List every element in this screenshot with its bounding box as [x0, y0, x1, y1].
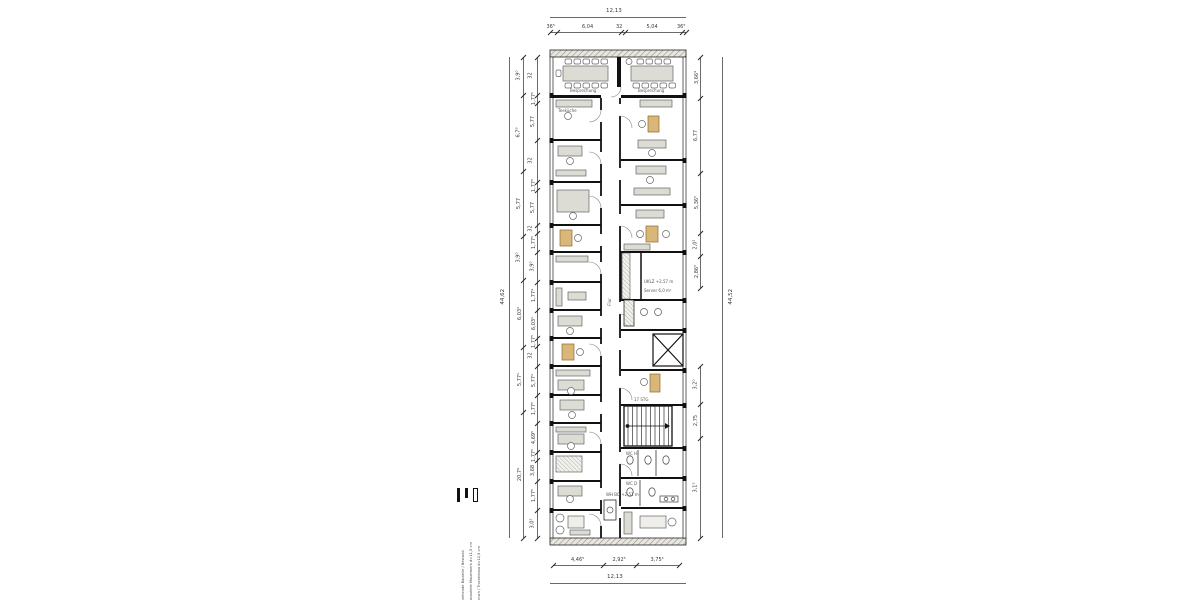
dim-label: 32	[529, 157, 534, 163]
dim-label: 5,77	[517, 197, 522, 208]
dim-label: 6,03¹	[532, 317, 537, 330]
room-label-note-center: WH BO +2,51 m	[606, 493, 639, 497]
dim-label: 5,04	[647, 25, 658, 30]
dim-label: 2,0²	[693, 239, 698, 249]
dim-total-top-line	[550, 17, 686, 18]
floor-plan-sheet: 12,13 12,13 44,62 44,52 36⁵6,04325,0436⁵…	[0, 0, 1200, 600]
meeting-room-right-furniture	[626, 59, 676, 89]
dim-label: 32	[529, 72, 534, 78]
legend-label: Bestehende Bauteile / Bestand	[461, 550, 465, 600]
dim-total-top: 12,13	[606, 9, 622, 15]
dim-label: 6,7⁹	[516, 128, 521, 138]
legend-line-sample	[465, 488, 468, 498]
dim-label: 3,9⁰	[516, 71, 521, 81]
legend-label: Neubauteile Mauerwerk d=11,5 cm	[469, 542, 473, 600]
dim-chain-line	[550, 32, 686, 33]
left-offices-furniture	[556, 100, 592, 535]
dim-label: 1,77⁵	[532, 449, 537, 462]
dim-label: 1,77⁵	[532, 488, 537, 501]
dim-label: 20,7⁹	[518, 468, 523, 481]
dim-label: 32	[616, 25, 622, 30]
dim-label: 3,9⁰	[516, 253, 521, 263]
legend: Bestehende Bauteile / BestandNeubauteile…	[455, 488, 485, 600]
dim-label: 3,66⁴	[695, 70, 700, 83]
dim-label: 1,77⁴	[532, 289, 537, 302]
dim-label: 32	[529, 225, 534, 231]
room-label-tea: Teeküche	[558, 109, 577, 113]
dim-total-right-line	[722, 57, 723, 538]
dim-label: 32	[529, 352, 534, 358]
room-label-meeting-left: Besprechung	[570, 89, 596, 93]
dim-chain-line	[700, 366, 701, 538]
stairs	[624, 406, 672, 446]
meeting-room-left-furniture	[556, 59, 608, 88]
legend-line-sample	[457, 488, 460, 502]
dim-label: 6,04	[582, 25, 593, 30]
dim-label: 3,0⁵	[530, 519, 535, 529]
room-label-wc-d: WC D	[626, 482, 637, 486]
wall-left	[550, 57, 553, 538]
dim-label: 4,46⁵	[571, 558, 584, 563]
dim-label: 1,77⁵	[532, 179, 537, 192]
dim-label: 1,77⁵	[532, 335, 537, 348]
dim-label: 36⁵	[547, 25, 555, 30]
dim-label: 1,77⁵	[532, 92, 537, 105]
dim-label: 36⁵	[677, 25, 685, 30]
dim-label: 2,86⁵	[695, 265, 700, 278]
legend-line-sample	[473, 488, 478, 502]
dim-label: 3,68	[531, 464, 536, 475]
dim-label: 6,77	[694, 129, 699, 140]
dim-label: 3,2⁰	[693, 380, 698, 390]
wall-right	[683, 57, 686, 538]
dim-total-left: 44,62	[501, 289, 507, 305]
dim-label: 5,77¹	[532, 373, 537, 386]
room-label-corridor: Flur	[608, 298, 612, 306]
dim-chain-line	[537, 57, 538, 538]
corridor-walls	[601, 98, 620, 538]
room-label-stair-note: 17 STG	[634, 398, 648, 402]
room-label-server: Server 6,0 m²	[644, 289, 672, 293]
dim-total-bottom-line	[550, 583, 686, 584]
server-room	[621, 252, 641, 300]
floor-plan-drawing	[0, 0, 1200, 600]
dim-label: 2,92⁵	[613, 558, 626, 563]
dim-label: 1,77⁵	[532, 235, 537, 248]
dim-chain-line	[553, 565, 679, 566]
dim-label: 1,77⁵	[532, 402, 537, 415]
room-label-meeting-right: Besprechung	[638, 89, 664, 93]
dim-label: 5,77¹	[518, 372, 523, 385]
dim-label: 5,77	[531, 115, 536, 126]
room-label-wc-h: WC H	[626, 452, 637, 456]
dim-label: 3,1⁵	[693, 483, 698, 493]
wall-top	[550, 50, 686, 57]
dim-label: 2,75	[694, 415, 699, 426]
dim-chain-line	[523, 57, 524, 538]
room-label-server-note: UKLZ +2,57 m	[644, 280, 673, 284]
elevator	[653, 334, 683, 366]
dim-label: 3,75⁴	[651, 558, 664, 563]
dim-label: 5,77	[531, 201, 536, 212]
wall-bottom	[550, 538, 686, 545]
dim-label: 6,03¹	[518, 306, 523, 319]
dim-total-left-line	[509, 57, 510, 538]
dim-label: 4,69⁵	[532, 430, 537, 443]
dim-total-bottom: 12,13	[607, 575, 623, 581]
dim-total-right: 44,52	[729, 289, 735, 305]
dim-label: 5,36⁵	[695, 196, 700, 209]
legend-label: Abbruch / Trockenbau d=12,5 cm	[477, 546, 481, 600]
dim-label: 3,9⁰	[530, 262, 535, 272]
